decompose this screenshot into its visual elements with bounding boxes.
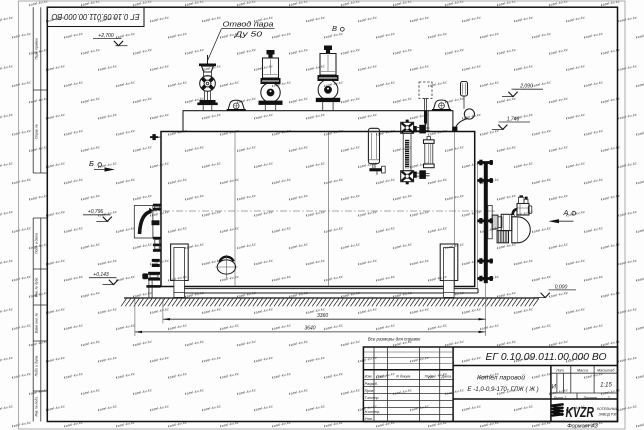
svg-text:Дата: Дата [441,375,452,379]
svg-text:Лист: Лист [375,375,386,379]
svg-text:0,000: 0,000 [555,284,568,290]
svg-text:Т.контр.: Т.контр. [365,396,380,400]
svg-text:КОТЕЛЬНЫЙ: КОТЕЛЬНЫЙ [597,407,619,411]
svg-text:Масштаб: Масштаб [597,369,615,373]
svg-text:Б: Б [89,159,94,168]
svg-text:Все размеры для справок: Все размеры для справок [368,336,422,341]
svg-text:3640: 3640 [304,326,315,332]
svg-text:N докум.: N докум. [396,375,411,379]
svg-text:2: 2 [606,396,609,400]
svg-text:+0,796: +0,796 [88,209,104,215]
svg-text:Подп. и дата: Подп. и дата [35,233,39,254]
svg-text:Подп. и дата: Подп. и дата [35,356,39,377]
svg-text:Лист 1: Лист 1 [553,396,567,400]
svg-text:ЗАВОД РЗГ: ЗАВОД РЗГ [599,413,619,417]
svg-text:1,746: 1,746 [507,116,520,122]
svg-text:+0,143: +0,143 [93,272,109,278]
svg-text:Пров.: Пров. [365,389,375,393]
svg-text:Утв.: Утв. [365,417,373,421]
svg-text:Ду 50: Ду 50 [234,29,264,38]
svg-text:Инв. № дубл.: Инв. № дубл. [35,277,39,297]
svg-text:Лит.: Лит. [555,369,565,373]
svg-text:Инв. № подл.: Инв. № подл. [35,396,39,417]
svg-text:Справ. №: Справ. № [35,124,39,139]
svg-text:Н.контр.: Н.контр. [365,410,381,414]
svg-text:Е -1,0-0,9-170- ГЛЖ ( Ж ): Е -1,0-0,9-170- ГЛЖ ( Ж ) [467,386,538,393]
svg-text:Перв. примен.: Перв. примен. [35,37,39,59]
svg-text:И: И [552,385,557,391]
svg-text:В: В [332,24,337,33]
svg-text:2,090: 2,090 [519,84,533,90]
svg-text:Подп.: Подп. [425,375,435,379]
svg-text:Изм.: Изм. [365,375,373,379]
svg-text:Отвод пара: Отвод пара [223,20,274,29]
svg-text:Взам. инв. №: Взам. инв. № [35,312,39,333]
svg-text:1:15: 1:15 [600,383,612,389]
svg-text:ЕГ 0.10.09.011.00.000 ВО: ЕГ 0.10.09.011.00.000 ВО [51,12,140,21]
svg-text:KVZR: KVZR [566,405,595,421]
svg-text:Котел паровой: Котел паровой [477,373,525,381]
svg-text:Формат А3: Формат А3 [567,423,598,429]
svg-text:3360: 3360 [317,313,328,319]
svg-text:А: А [563,208,569,217]
svg-text:Разраб.: Разраб. [365,382,378,386]
svg-text:ЕГ 0.10.09.011.00.000 ВО: ЕГ 0.10.09.011.00.000 ВО [486,352,607,363]
svg-text:Листов: Листов [582,396,597,400]
svg-text:Масса: Масса [577,369,588,373]
